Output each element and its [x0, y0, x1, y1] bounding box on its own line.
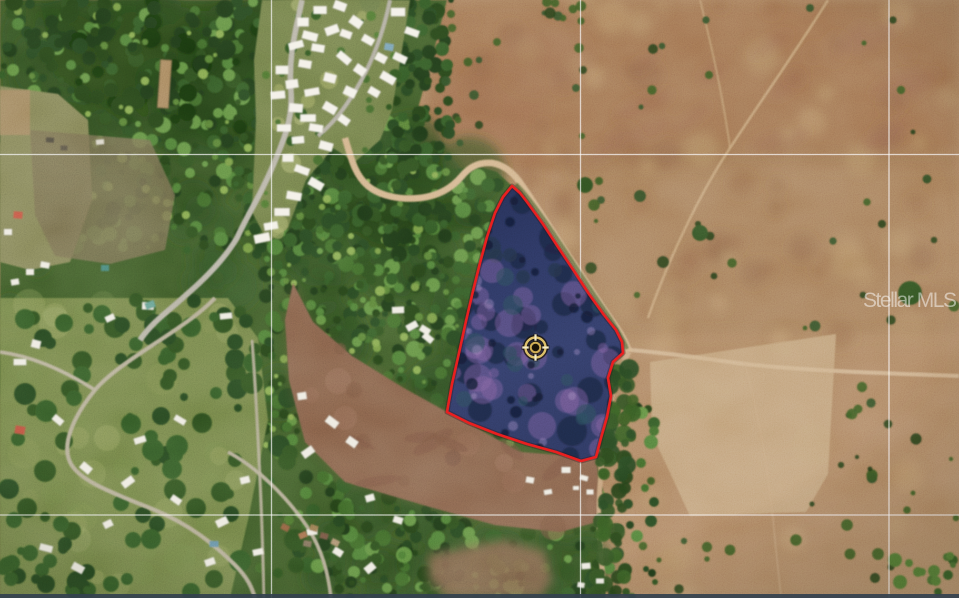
- svg-text:Stellar MLS: Stellar MLS: [863, 289, 957, 312]
